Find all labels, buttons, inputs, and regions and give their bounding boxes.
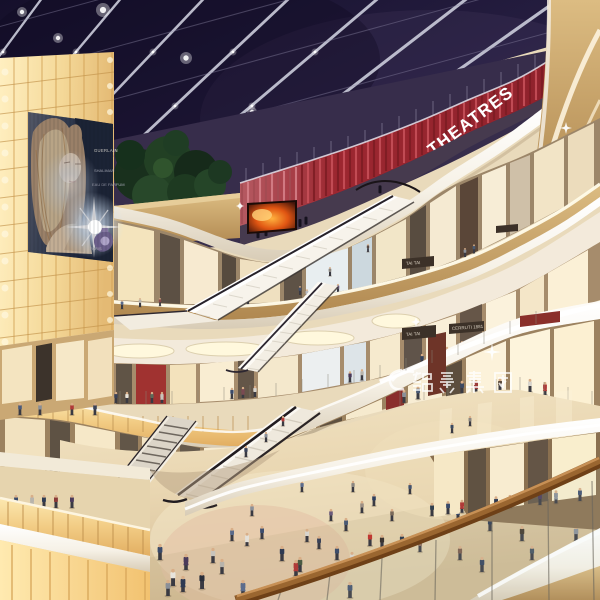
- svg-text:TAI TAI: TAI TAI: [406, 331, 421, 337]
- svg-text:TAI TAI: TAI TAI: [406, 260, 421, 266]
